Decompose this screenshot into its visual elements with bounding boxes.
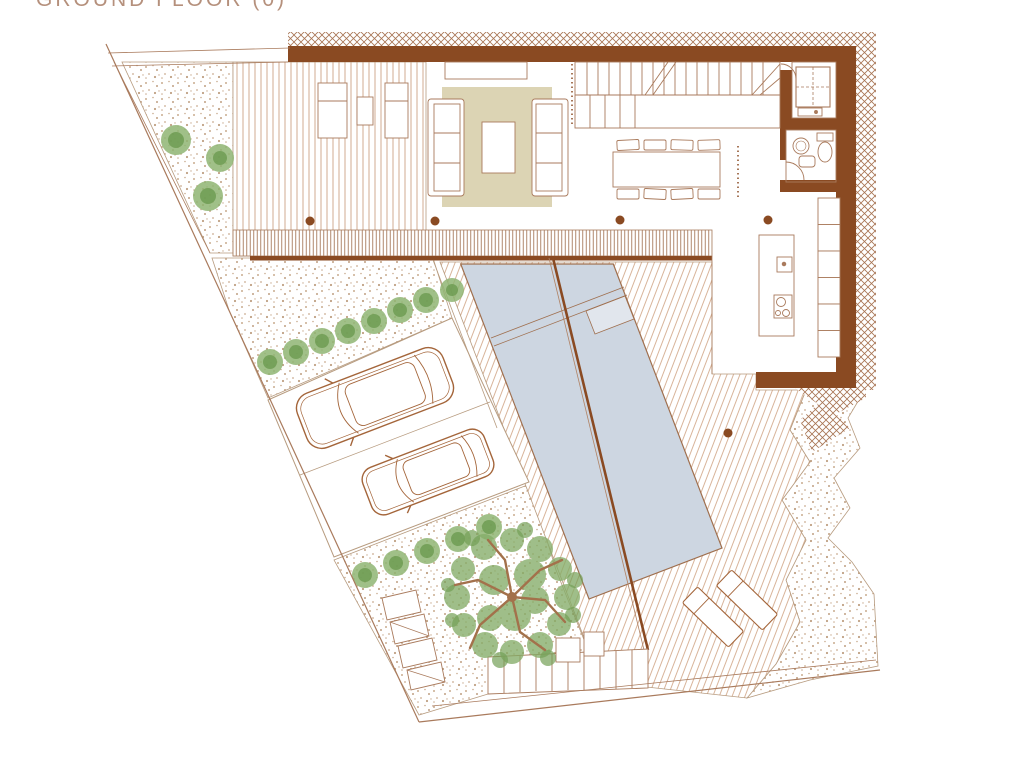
side-table bbox=[357, 97, 373, 125]
wall-lift-west bbox=[780, 70, 792, 120]
wall-north bbox=[288, 46, 856, 62]
floor-plan-page: GROUND FLOOR (0) bbox=[0, 0, 1020, 765]
dining-area bbox=[613, 139, 738, 200]
sofa-right bbox=[532, 99, 568, 196]
lounge-chair-2 bbox=[385, 83, 408, 138]
coffee-table bbox=[482, 122, 515, 173]
wall-south-kitchen bbox=[756, 372, 836, 388]
toilet-bowl bbox=[818, 142, 832, 162]
kitchen-island bbox=[759, 235, 794, 336]
kitchen bbox=[712, 198, 840, 374]
tree-trunk bbox=[507, 592, 517, 602]
lift-tray bbox=[798, 108, 822, 116]
wall-bath-west bbox=[780, 130, 786, 160]
sofa-left bbox=[428, 99, 464, 196]
toilet-tank bbox=[817, 133, 833, 141]
kitchen-cabinets bbox=[818, 198, 840, 357]
floor-plan-drawing bbox=[0, 0, 1020, 765]
bidet bbox=[799, 156, 815, 167]
console bbox=[445, 62, 527, 79]
living-room bbox=[428, 62, 568, 207]
washbasin bbox=[793, 138, 809, 154]
staircase bbox=[572, 62, 780, 128]
wall-lift-south bbox=[780, 118, 836, 130]
dining-table bbox=[613, 152, 720, 187]
bathroom bbox=[786, 130, 836, 182]
facade-sill bbox=[250, 256, 712, 261]
glass-facade-band bbox=[233, 230, 712, 261]
lounge-chair-1 bbox=[318, 83, 347, 138]
